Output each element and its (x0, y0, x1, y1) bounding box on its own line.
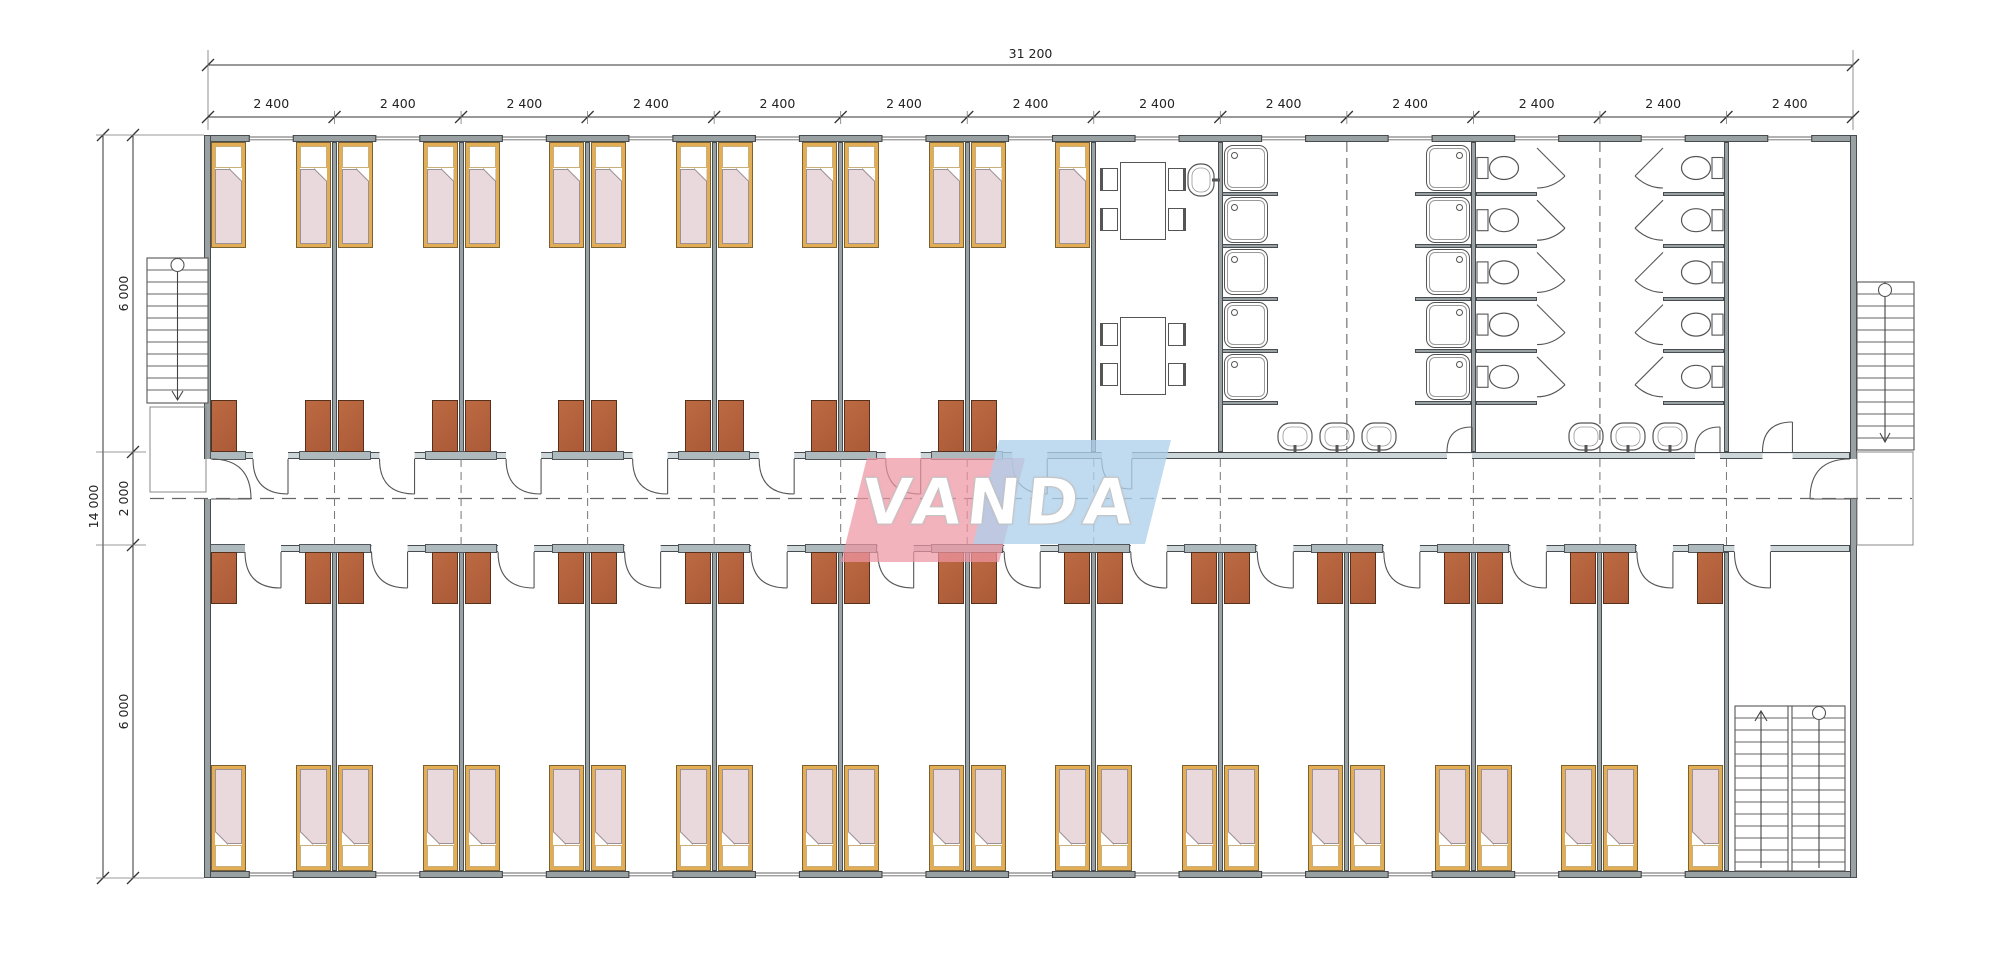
exterior-wall-top (204, 135, 1857, 142)
dim-label-module: 2 400 (760, 96, 796, 111)
shower-divider-wall (1222, 244, 1278, 248)
wash-basin-bowl (1574, 427, 1598, 446)
wardrobe (432, 552, 458, 604)
toilet-stall-wall (1663, 349, 1724, 353)
stall-door-swing (1635, 176, 1663, 188)
dim-label-module: 2 400 (1392, 96, 1428, 111)
blanket-fold (1565, 832, 1578, 845)
blanket-fold (1607, 832, 1620, 845)
blanket-fold (933, 832, 946, 845)
wardrobe (338, 552, 364, 604)
toilet-tank (1477, 366, 1488, 387)
bed-pillow (215, 845, 242, 867)
stall-door-swing (1537, 333, 1565, 345)
wash-basin (1278, 423, 1312, 450)
wardrobe (338, 400, 364, 452)
shower-divider-wall (1415, 297, 1471, 301)
stair-start-icon (1879, 284, 1892, 297)
dim-tick (1088, 111, 1100, 123)
wardrobe (305, 552, 331, 604)
bed-pillow (427, 146, 454, 168)
bed-pillow (1186, 845, 1213, 867)
wardrobe (432, 400, 458, 452)
stall-door-swing (1635, 280, 1663, 292)
bed-pillow (553, 146, 580, 168)
bed (1055, 765, 1090, 871)
bed (802, 765, 837, 871)
dim-label-total-width: 31 200 (1009, 46, 1053, 61)
wardrobe (718, 400, 744, 452)
shower-drain-icon (1231, 309, 1238, 316)
dim-tick (1720, 111, 1732, 123)
bed (423, 142, 458, 248)
door-swing (245, 552, 281, 588)
wash-basin-bowl (1658, 427, 1682, 446)
dim-tick (127, 129, 139, 141)
chair (1168, 323, 1186, 346)
blanket-fold (680, 832, 693, 845)
floor-plan: 31 2002 4002 4002 4002 4002 4002 4002 40… (0, 0, 2000, 977)
dim-label-module: 2 400 (506, 96, 542, 111)
shower-drain-icon (1231, 361, 1238, 368)
shower-divider-wall (1222, 297, 1278, 301)
wash-basin-bowl (1325, 427, 1349, 446)
dim-tick (1847, 111, 1859, 123)
door-sill (425, 451, 497, 460)
blanket-fold (722, 832, 735, 845)
shower-drain-icon (1456, 152, 1463, 159)
wardrobe (591, 400, 617, 452)
wardrobe (1317, 552, 1343, 604)
blanket-fold (609, 168, 622, 181)
shower-stall (1224, 249, 1268, 295)
bed-pillow (722, 146, 749, 168)
shower-drain-icon (1231, 204, 1238, 211)
wash-basin (1320, 423, 1354, 450)
toilet-stall-wall (1476, 192, 1537, 196)
toilet-stall-wall (1663, 244, 1724, 248)
chair (1100, 323, 1118, 346)
bed (929, 142, 964, 248)
blanket-fold (1481, 832, 1494, 845)
bed (718, 765, 753, 871)
wardrobe (685, 400, 711, 452)
bed-pillow (1354, 845, 1381, 867)
dim-label-module: 2 400 (1772, 96, 1808, 111)
door-swing (372, 552, 408, 588)
bed-pillow (975, 845, 1002, 867)
shower-stall (1224, 197, 1268, 243)
bed-pillow (848, 845, 875, 867)
bed (802, 142, 837, 248)
wardrobe (465, 552, 491, 604)
dim-tick (1341, 111, 1353, 123)
toilet-tank (1477, 158, 1488, 179)
bed (844, 142, 879, 248)
bed (1224, 765, 1259, 871)
bed (676, 142, 711, 248)
bed-pillow (215, 146, 242, 168)
bed-pillow (342, 845, 369, 867)
wash-basin (1362, 423, 1396, 450)
bed (1182, 765, 1217, 871)
shower-stall (1224, 354, 1268, 400)
chair (1100, 363, 1118, 386)
partition-wall (332, 142, 337, 452)
toilet-tank (1712, 262, 1723, 283)
door-swing (1257, 552, 1293, 588)
bed (1477, 765, 1512, 871)
shower-stall (1426, 197, 1470, 243)
bed (549, 765, 584, 871)
bed (1055, 142, 1090, 248)
shower-drain-icon (1456, 204, 1463, 211)
bed (211, 765, 246, 871)
dim-tick (582, 111, 594, 123)
shower-drain-icon (1231, 152, 1238, 159)
wardrobe (1224, 552, 1250, 604)
chair (1168, 208, 1186, 231)
bed-pillow (1059, 146, 1086, 168)
blanket-fold (229, 168, 242, 181)
toilet-bowl (1490, 313, 1519, 336)
stall-door-leaf (1537, 148, 1565, 176)
stall-door-leaf (1537, 305, 1565, 333)
bed-pillow (553, 845, 580, 867)
toilet-bowl (1490, 365, 1519, 388)
dim-label-module: 2 400 (1266, 96, 1302, 111)
bed-pillow (1565, 845, 1592, 867)
blanket-fold (553, 832, 566, 845)
wardrobe (558, 552, 584, 604)
blanket-fold (806, 832, 819, 845)
partition-wall (332, 552, 337, 871)
bed (1561, 765, 1596, 871)
partition-wall (1597, 552, 1602, 871)
wash-basin-bowl (1616, 427, 1640, 446)
stall-door-swing (1537, 176, 1565, 188)
toilet-bowl (1682, 261, 1711, 284)
wardrobe (1570, 552, 1596, 604)
dining-table (1120, 317, 1166, 395)
bed-pillow (1439, 845, 1466, 867)
wash-basin-bowl (1283, 427, 1307, 446)
bed (465, 765, 500, 871)
stall-door-swing (1635, 333, 1663, 345)
door-swing (1810, 459, 1850, 499)
toilet-bowl (1682, 209, 1711, 232)
bed-pillow (933, 146, 960, 168)
shower-divider-wall (1415, 349, 1471, 353)
shower-divider-wall (1222, 349, 1278, 353)
arrow-up-icon (1755, 711, 1767, 721)
bed (423, 765, 458, 871)
dim-tick (329, 111, 341, 123)
vanda-logo-watermark: VANDA (840, 430, 1170, 570)
door-swing (1762, 422, 1792, 452)
shower-divider-wall (1415, 192, 1471, 196)
dim-tick (1847, 59, 1859, 71)
bed-pillow (595, 146, 622, 168)
dim-tick (97, 129, 109, 141)
wardrobe (811, 400, 837, 452)
wardrobe (1603, 552, 1629, 604)
bed-pillow (1481, 845, 1508, 867)
wardrobe (1444, 552, 1470, 604)
stair-start-icon (171, 259, 184, 272)
bed (591, 765, 626, 871)
blanket-fold (820, 168, 833, 181)
wardrobe (305, 400, 331, 452)
toilet-tank (1712, 366, 1723, 387)
door-swing (253, 459, 288, 494)
toilet-tank (1712, 314, 1723, 335)
blanket-fold (1692, 832, 1705, 845)
stall-door-leaf (1635, 252, 1663, 280)
toilet-tank (1712, 158, 1723, 179)
blanket-fold (1059, 832, 1072, 845)
shower-drain-icon (1231, 256, 1238, 263)
stall-door-leaf (1537, 252, 1565, 280)
exterior-wall-left (204, 135, 211, 878)
west-landing (150, 407, 206, 492)
shower-stall (1426, 249, 1470, 295)
door-swing (1637, 552, 1673, 588)
shower-drain-icon (1456, 361, 1463, 368)
bed-pillow (1312, 845, 1339, 867)
blanket-fold (1186, 832, 1199, 845)
blanket-fold (947, 168, 960, 181)
bed-pillow (300, 146, 327, 168)
door-swing (759, 459, 794, 494)
dim-label-module: 2 400 (1013, 96, 1049, 111)
wash-basin (1611, 423, 1645, 450)
chair (1168, 363, 1186, 386)
dim-label-module: 2 400 (633, 96, 669, 111)
door-sill (299, 451, 371, 460)
dim-tick (97, 872, 109, 884)
stall-door-leaf (1635, 305, 1663, 333)
bed (971, 142, 1006, 248)
blanket-fold (427, 832, 440, 845)
toilet-tank (1712, 210, 1723, 231)
blanket-fold (469, 832, 482, 845)
partition-wall (1091, 552, 1096, 871)
door-swing (1734, 552, 1770, 588)
exterior-wall-bottom (204, 871, 1857, 878)
wardrobe (1697, 552, 1723, 604)
dim-tick (961, 111, 973, 123)
blanket-fold (595, 832, 608, 845)
dim-tick (1594, 111, 1606, 123)
door-swing (1447, 427, 1472, 452)
bed-pillow (595, 845, 622, 867)
stall-door-leaf (1635, 357, 1663, 385)
toilet-stall-wall (1663, 297, 1724, 301)
dim-tick (127, 539, 139, 551)
toilet-bowl (1490, 209, 1519, 232)
toilet-stall-wall (1476, 401, 1537, 405)
dim-label-total-height: 14 000 (86, 485, 101, 529)
shower-stall (1426, 302, 1470, 348)
blanket-fold (975, 832, 988, 845)
bed (1097, 765, 1132, 871)
blanket-fold (215, 832, 228, 845)
dim-label-height-segment: 6 000 (116, 276, 131, 312)
bed (1435, 765, 1470, 871)
wardrobe (211, 400, 237, 452)
staircase-interior (1735, 706, 1845, 871)
dim-tick (127, 872, 139, 884)
logo-text: VANDA (856, 448, 1168, 558)
partition-wall (712, 552, 717, 871)
chair (1168, 168, 1186, 191)
bed (296, 142, 331, 248)
toilet-stall-wall (1476, 297, 1537, 301)
partition-wall (585, 552, 590, 871)
bed-pillow (848, 146, 875, 168)
partition-wall (1091, 142, 1096, 452)
blanket-fold (342, 832, 355, 845)
blanket-fold (1073, 168, 1086, 181)
toilet-stall-wall (1476, 349, 1537, 353)
stall-door-leaf (1635, 148, 1663, 176)
blanket-fold (694, 168, 707, 181)
dim-label-height-segment: 2 000 (116, 481, 131, 517)
bed (296, 765, 331, 871)
partition-wall (838, 142, 843, 452)
chair (1100, 208, 1118, 231)
bed-pillow (680, 146, 707, 168)
dining-table (1120, 162, 1166, 240)
dim-label-module: 2 400 (1139, 96, 1175, 111)
toilet-bowl (1682, 157, 1711, 180)
bed (676, 765, 711, 871)
shower-divider-wall (1415, 244, 1471, 248)
dim-tick (1467, 111, 1479, 123)
stair-start-icon (1813, 707, 1826, 720)
shower-stall (1224, 302, 1268, 348)
blanket-fold (356, 168, 369, 181)
toilet-stall-wall (1663, 192, 1724, 196)
dim-tick (1214, 111, 1226, 123)
stall-door-swing (1635, 228, 1663, 240)
east-landing (1857, 452, 1913, 545)
shower-drain-icon (1456, 309, 1463, 316)
toilet-tank (1477, 314, 1488, 335)
bed (1603, 765, 1638, 871)
wardrobe (1477, 552, 1503, 604)
bed-pillow (975, 146, 1002, 168)
door-swing (625, 552, 661, 588)
bed-pillow (1607, 845, 1634, 867)
stall-door-swing (1635, 385, 1663, 397)
blanket-fold (441, 168, 454, 181)
door-swing (1695, 427, 1720, 452)
shower-divider-wall (1222, 401, 1278, 405)
stall-door-swing (1537, 385, 1565, 397)
partition-wall (459, 552, 464, 871)
partition-wall (585, 142, 590, 452)
blanket-fold (1439, 832, 1452, 845)
dim-tick (835, 111, 847, 123)
bed-pillow (722, 845, 749, 867)
wardrobe (211, 552, 237, 604)
blanket-fold (300, 832, 313, 845)
exterior-wall-right (1850, 135, 1857, 878)
wardrobe (1350, 552, 1376, 604)
dim-tick (455, 111, 467, 123)
partition-wall (1724, 142, 1729, 452)
wardrobe (685, 552, 711, 604)
door-swing (506, 459, 541, 494)
bed (1350, 765, 1385, 871)
toilet-bowl (1490, 261, 1519, 284)
shower-stall (1224, 145, 1268, 191)
staircase-west (147, 258, 208, 403)
toilet-stall-wall (1476, 244, 1537, 248)
bed-pillow (1059, 845, 1086, 867)
partition-wall (1471, 552, 1476, 871)
bed-pillow (427, 845, 454, 867)
bed-pillow (1228, 845, 1255, 867)
dim-label-module: 2 400 (1645, 96, 1681, 111)
dim-label-module: 2 400 (253, 96, 289, 111)
partition-wall (712, 142, 717, 452)
bed-pillow (933, 845, 960, 867)
partition-wall (1218, 552, 1223, 871)
partition-wall (1724, 552, 1729, 871)
bed-pillow (1692, 845, 1719, 867)
stall-door-swing (1537, 280, 1565, 292)
door-swing (633, 459, 668, 494)
door-sill (210, 451, 246, 460)
blanket-fold (1354, 832, 1367, 845)
dim-label-module: 2 400 (1519, 96, 1555, 111)
dim-tick (202, 59, 214, 71)
toilet-tank (1477, 210, 1488, 231)
bed-pillow (680, 845, 707, 867)
shower-drain-icon (1456, 256, 1463, 263)
shower-stall (1426, 354, 1470, 400)
stall-door-leaf (1537, 357, 1565, 385)
shower-stall (1426, 145, 1470, 191)
toilet-stall-wall (1663, 401, 1724, 405)
chair (1100, 168, 1118, 191)
bed (1308, 765, 1343, 871)
shower-divider-wall (1222, 192, 1278, 196)
blanket-fold (483, 168, 496, 181)
blanket-fold (567, 168, 580, 181)
wardrobe (558, 400, 584, 452)
dim-tick (202, 111, 214, 123)
wardrobe (811, 552, 837, 604)
sink (1188, 164, 1214, 196)
wash-basin (1653, 423, 1687, 450)
blanket-fold (736, 168, 749, 181)
toilet-bowl (1682, 365, 1711, 388)
toilet-bowl (1490, 157, 1519, 180)
door-sill (678, 451, 750, 460)
bed (338, 765, 373, 871)
bed-pillow (342, 146, 369, 168)
partition-wall (965, 552, 970, 871)
bed (718, 142, 753, 248)
dim-label-module: 2 400 (886, 96, 922, 111)
blanket-fold (848, 832, 861, 845)
blanket-fold (1228, 832, 1241, 845)
door-swing (498, 552, 534, 588)
